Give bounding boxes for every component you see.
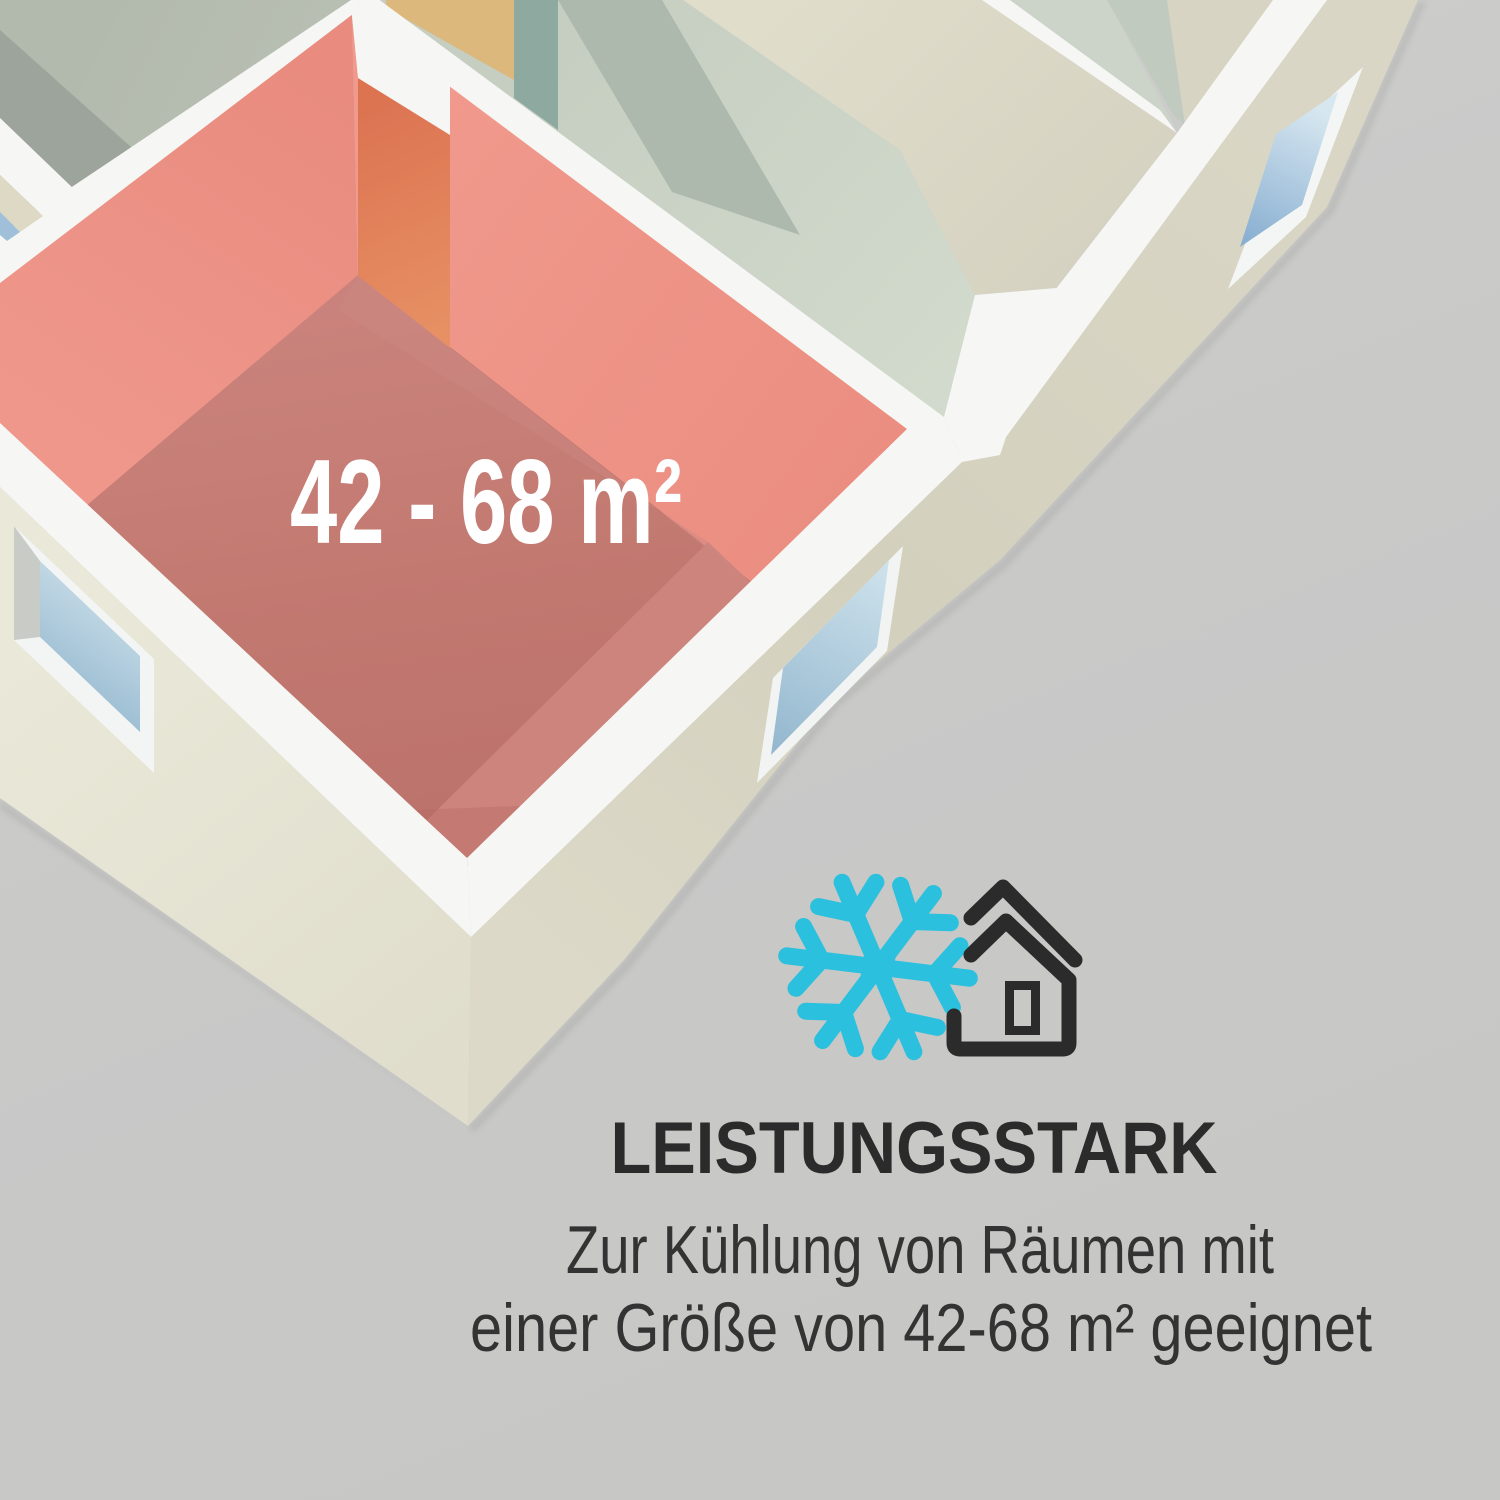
svg-text:LEISTUNGSSTARK: LEISTUNGSSTARK (611, 1108, 1218, 1189)
svg-text:einer Größe von 42-68 m² geeig: einer Größe von 42-68 m² geeignet (470, 1290, 1372, 1366)
svg-text:42 - 68 m²: 42 - 68 m² (290, 435, 682, 569)
svg-text:Zur Kühlung von Räumen mit: Zur Kühlung von Räumen mit (566, 1212, 1274, 1288)
